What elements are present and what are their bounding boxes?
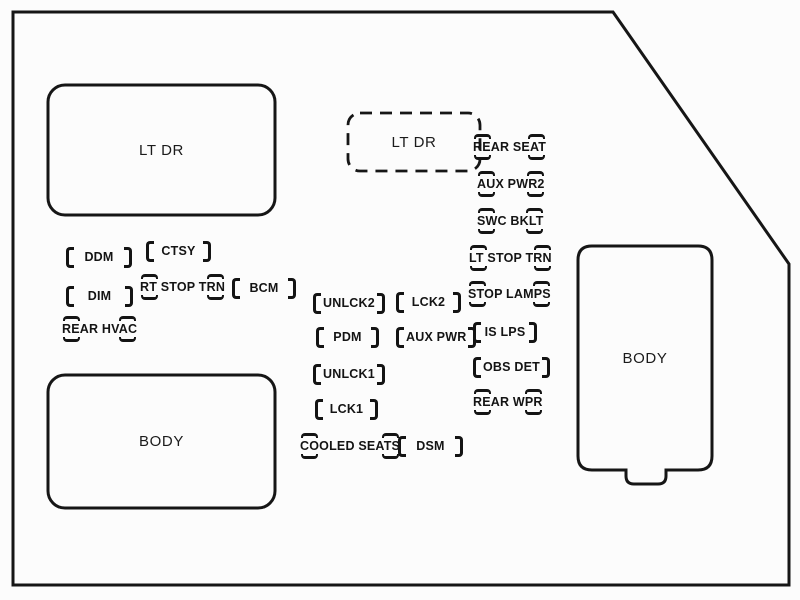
- fuse-mark-icon: [119, 337, 136, 342]
- fuse-obs-det: OBS DET: [473, 356, 542, 379]
- bracket-left-icon: [313, 364, 321, 385]
- bracket-right-icon: [455, 436, 463, 457]
- bracket-left-icon: [398, 436, 406, 457]
- fuse-label: COOLED SEATS: [300, 439, 400, 453]
- bracket-right-icon: [371, 327, 379, 348]
- fuse-label: SWC BKLT: [477, 214, 544, 228]
- bracket-left-icon: [316, 327, 324, 348]
- lt-dr-main-box-outline: [48, 85, 275, 215]
- fuse-bcm: BCM: [232, 277, 296, 300]
- fuse-mark-icon: [207, 274, 224, 279]
- bracket-left-icon: [313, 293, 321, 314]
- fuse-label: LCK2: [410, 291, 447, 314]
- fuse-aux-pwr: AUX PWR: [396, 326, 465, 349]
- fuse-mark-icon: [470, 245, 487, 250]
- bracket-left-icon: [232, 278, 240, 299]
- fuse-label: REAR HVAC: [62, 322, 137, 336]
- fuse-mark-icon: [474, 410, 491, 415]
- body-left-box-outline: [48, 375, 275, 508]
- bracket-left-icon: [396, 327, 404, 348]
- fuse-dsm: DSM: [398, 435, 463, 458]
- bracket-right-icon: [288, 278, 296, 299]
- fuse-mark-icon: [63, 316, 80, 321]
- fuse-mark-icon: [478, 171, 495, 176]
- fuse-mark-icon: [469, 281, 486, 286]
- fuse-rt-stop-trn: RT STOP TRN: [138, 274, 227, 300]
- fuse-mark-icon: [526, 229, 543, 234]
- fuse-ctsy: CTSY: [146, 240, 211, 263]
- fuse-lt-stop-trn: LT STOP TRN: [467, 245, 554, 271]
- fuse-label: CTSY: [159, 240, 197, 263]
- fuse-lck2: LCK2: [396, 291, 461, 314]
- fuse-label: AUX PWR: [404, 326, 468, 349]
- fuse-rear-wpr: REAR WPR: [471, 389, 545, 415]
- body-right-box-outline: [578, 246, 712, 484]
- fuse-label: REAR SEAT: [473, 140, 546, 154]
- bracket-right-icon: [377, 364, 385, 385]
- fuse-mark-icon: [382, 454, 399, 459]
- fuse-mark-icon: [382, 433, 399, 438]
- bracket-left-icon: [66, 286, 74, 307]
- bracket-right-icon: [529, 322, 537, 343]
- fuse-mark-icon: [527, 171, 544, 176]
- bracket-right-icon: [203, 241, 211, 262]
- fuse-rear-hvac: REAR HVAC: [60, 316, 139, 342]
- fuse-mark-icon: [528, 155, 545, 160]
- bracket-right-icon: [542, 357, 550, 378]
- fuse-label: RT STOP TRN: [140, 280, 225, 294]
- fuse-mark-icon: [525, 410, 542, 415]
- fuse-label: LCK1: [328, 398, 365, 421]
- fuse-pdm: PDM: [316, 326, 379, 349]
- fuse-unlck2: UNLCK2: [313, 292, 378, 315]
- bracket-right-icon: [453, 292, 461, 313]
- bracket-right-icon: [377, 293, 385, 314]
- fuse-label: PDM: [331, 326, 363, 349]
- bracket-left-icon: [473, 322, 481, 343]
- fuse-label: REAR WPR: [473, 395, 543, 409]
- fuse-box-diagram: LT DR LT DR BODY BODY DDM CTSY DIM RT ST…: [0, 0, 800, 600]
- fuse-label: UNLCK2: [321, 292, 377, 315]
- bracket-left-icon: [473, 357, 481, 378]
- fuse-mark-icon: [478, 208, 495, 213]
- fuse-mark-icon: [478, 229, 495, 234]
- bracket-right-icon: [124, 247, 132, 268]
- fuse-mark-icon: [526, 208, 543, 213]
- bracket-left-icon: [66, 247, 74, 268]
- fuse-label: OBS DET: [481, 356, 542, 379]
- fuse-label: LT STOP TRN: [469, 251, 552, 265]
- fuse-label: AUX PWR2: [477, 177, 545, 191]
- fuse-mark-icon: [207, 295, 224, 300]
- fuse-mark-icon: [301, 454, 318, 459]
- bracket-left-icon: [315, 399, 323, 420]
- fuse-ddm: DDM: [66, 246, 132, 269]
- fuse-mark-icon: [470, 266, 487, 271]
- fuse-mark-icon: [141, 295, 158, 300]
- fuse-mark-icon: [528, 134, 545, 139]
- bracket-right-icon: [125, 286, 133, 307]
- fuse-mark-icon: [527, 192, 544, 197]
- fuse-label: DSM: [414, 435, 446, 458]
- fuse-stop-lamps: STOP LAMPS: [466, 281, 553, 307]
- fuse-mark-icon: [474, 155, 491, 160]
- fuse-unlck1: UNLCK1: [313, 363, 378, 386]
- fuse-mark-icon: [119, 316, 136, 321]
- fuse-mark-icon: [474, 134, 491, 139]
- fuse-label: STOP LAMPS: [468, 287, 551, 301]
- fuse-label: DIM: [86, 285, 114, 308]
- lt-dr-dashed-box-outline: [348, 113, 480, 171]
- fuse-aux-pwr2: AUX PWR2: [475, 171, 547, 197]
- fuse-dim: DIM: [66, 285, 133, 308]
- fuse-label: UNLCK1: [321, 363, 377, 386]
- fuse-label: BCM: [247, 277, 280, 300]
- fuse-is-lps: IS LPS: [473, 321, 537, 344]
- fuse-mark-icon: [301, 433, 318, 438]
- fuse-label: DDM: [82, 246, 115, 269]
- bracket-left-icon: [396, 292, 404, 313]
- fuse-mark-icon: [534, 245, 551, 250]
- fuse-mark-icon: [474, 389, 491, 394]
- fuse-mark-icon: [525, 389, 542, 394]
- fuse-mark-icon: [478, 192, 495, 197]
- fuse-mark-icon: [141, 274, 158, 279]
- fuse-mark-icon: [469, 302, 486, 307]
- fuse-mark-icon: [533, 302, 550, 307]
- fuse-mark-icon: [533, 281, 550, 286]
- bracket-right-icon: [370, 399, 378, 420]
- fuse-mark-icon: [534, 266, 551, 271]
- fuse-mark-icon: [63, 337, 80, 342]
- fuse-label: IS LPS: [483, 321, 528, 344]
- fuse-cooled-seats: COOLED SEATS: [298, 433, 402, 459]
- fuse-rear-seat: REAR SEAT: [471, 134, 548, 160]
- fuse-swc-bklt: SWC BKLT: [475, 208, 546, 234]
- bracket-left-icon: [146, 241, 154, 262]
- fuse-lck1: LCK1: [315, 398, 378, 421]
